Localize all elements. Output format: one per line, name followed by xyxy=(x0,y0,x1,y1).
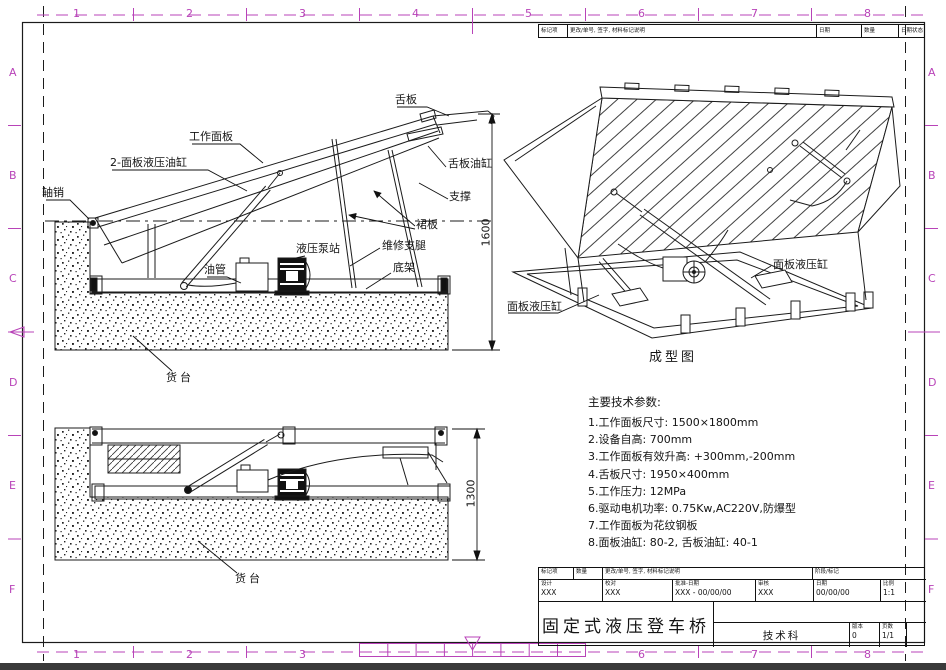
zone-number-bottom: 2 xyxy=(186,649,193,661)
zone-letter-left: C xyxy=(9,273,17,285)
cell-label: 比例 xyxy=(881,580,926,588)
cell-label: 版本 xyxy=(850,623,879,631)
bottom-bar xyxy=(0,663,946,670)
title-block-cell: 标记项 xyxy=(539,568,574,580)
zone-letter-right: E xyxy=(928,480,935,492)
revision-strip-cell: 日期 xyxy=(816,25,861,37)
department: 技术科 xyxy=(714,623,849,647)
callout-panel-cylinder: 2-面板液压油缸 xyxy=(110,157,187,169)
revision-strip-cell: 数量 xyxy=(861,25,898,37)
title-block-cell-checker: 校对 XXX xyxy=(603,580,673,602)
tech-parameter-item: 3.工作面板有效升高: +300mm,-200mm xyxy=(588,448,928,465)
dimension-text-1300: 1300 xyxy=(465,472,478,516)
zone-letter-right: F xyxy=(928,584,934,596)
cell-label: 数量 xyxy=(574,568,602,576)
callout-service-legs: 维修支腿 xyxy=(382,240,426,252)
cell-label: 审核 xyxy=(756,580,813,588)
cell-label: 日期 xyxy=(814,580,880,588)
zone-letter-right: D xyxy=(928,377,936,389)
dimension-text-1600: 1600 xyxy=(480,211,493,255)
zone-number-bottom: 6 xyxy=(638,649,645,661)
callout-tongue-plate: 舌板 xyxy=(395,94,417,106)
side-view-lowered xyxy=(55,427,450,560)
zone-number-bottom: 8 xyxy=(864,649,871,661)
tech-parameters-title: 主要技术参数: xyxy=(588,394,928,410)
callout-skirt-plate: 裙板 xyxy=(416,219,438,231)
callout-axle-pin: 轴销 xyxy=(42,187,64,199)
zone-number-top: 3 xyxy=(299,8,306,20)
title-block-cell-designer: 设计 XXX xyxy=(539,580,603,602)
zone-number-top: 2 xyxy=(186,8,193,20)
callout-panel-cylinder-iso-right: 面板液压缸 xyxy=(773,259,828,271)
tech-parameter-item: 5.工作压力: 12MPa xyxy=(588,483,928,500)
cell-value: 00/00/00 xyxy=(814,588,880,597)
title-block-cell: 阶段/标记 xyxy=(813,568,926,580)
callout-support: 支撑 xyxy=(449,191,471,203)
cell-label: 标记项 xyxy=(539,568,573,576)
title-block-empty-cell xyxy=(714,602,926,623)
title-block-cell-auditor: 审核 XXX xyxy=(756,580,814,602)
callout-pump-station: 液压泵站 xyxy=(296,243,340,255)
title-block-cell-date: 日期 00/00/00 xyxy=(814,580,881,602)
zone-number-top: 1 xyxy=(73,8,80,20)
zone-number-top: 8 xyxy=(864,8,871,20)
tech-parameter-item: 7.工作面板为花纹钢板 xyxy=(588,517,928,534)
dimension-1600 xyxy=(452,114,500,350)
isometric-view xyxy=(504,83,900,338)
cell-label: 批准-日期 xyxy=(673,580,755,588)
title-block-cell-sheet: 页数 1/1 xyxy=(879,623,906,647)
zone-number-top: 7 xyxy=(751,8,758,20)
title-block-cell-version: 版本 0 xyxy=(849,623,879,647)
zone-letter-left: F xyxy=(9,584,15,596)
title-block-cell: 数量 xyxy=(574,568,603,580)
zone-number-top: 6 xyxy=(638,8,645,20)
cell-label: 更改/单号, 签字, 材料标记说明 xyxy=(603,568,812,576)
cell-label: 校对 xyxy=(603,580,672,588)
cell-value: XXX - 00/00/00 xyxy=(673,588,755,597)
cell-label: 设计 xyxy=(539,580,602,588)
cell-label: 页数 xyxy=(880,623,906,631)
tech-parameter-item: 6.驱动电机功率: 0.75Kw,AC220V,防爆型 xyxy=(588,500,928,517)
zone-letter-left: B xyxy=(9,170,17,182)
revision-strip: 标记项 更改/单号, 签字, 材料标记说明 日期 数量 日期状态 xyxy=(538,24,925,38)
callout-dock-lower: 货台 xyxy=(235,573,263,585)
product-title: 固定式液压登车桥 xyxy=(539,602,714,647)
title-block-cell: 更改/单号, 签字, 材料标记说明 xyxy=(603,568,813,580)
callout-base-frame: 底架 xyxy=(393,262,415,274)
callout-oil-pipe: 油管 xyxy=(204,264,226,276)
revision-strip-cell: 标记项 xyxy=(539,25,567,37)
callout-panel-cylinder-iso-left: 面板液压缸 xyxy=(507,301,562,313)
zone-letter-right: B xyxy=(928,170,936,182)
title-block-empty-cell xyxy=(906,623,926,647)
cell-value: 0 xyxy=(850,631,879,640)
isometric-caption: 成型图 xyxy=(649,346,697,365)
callout-work-panel: 工作面板 xyxy=(189,131,233,143)
zone-letter-left: A xyxy=(9,67,17,79)
cell-label: 阶段/标记 xyxy=(813,568,926,576)
cell-value: 1/1 xyxy=(880,631,906,640)
zone-number-top: 5 xyxy=(525,8,532,20)
cell-value: XXX xyxy=(756,588,813,597)
tech-parameter-item: 1.工作面板尺寸: 1500×1800mm xyxy=(588,414,928,431)
title-block-cell-approver: 批准-日期 XXX - 00/00/00 xyxy=(673,580,756,602)
drawing-sheet: 1 2 3 4 5 6 7 8 1 2 3 6 7 8 A B C D E F … xyxy=(0,0,946,670)
zone-number-top: 4 xyxy=(412,8,419,20)
zone-letter-right: C xyxy=(928,273,936,285)
tech-parameter-item: 4.舌板尺寸: 1950×400mm xyxy=(588,466,928,483)
tech-parameter-item: 2.设备自高: 700mm xyxy=(588,431,928,448)
callout-dock-upper: 货台 xyxy=(166,372,194,384)
zone-number-bottom: 3 xyxy=(299,649,306,661)
title-block-cell-scale: 比例 1:1 xyxy=(881,580,926,602)
cell-value: XXX xyxy=(539,588,602,597)
revision-strip-cell: 日期状态 xyxy=(898,25,924,37)
revision-strip-cell: 更改/单号, 签字, 材料标记说明 xyxy=(567,25,816,37)
zone-letter-left: D xyxy=(9,377,17,389)
callout-tongue-cylinder: 舌板油缸 xyxy=(448,158,492,170)
zone-letter-right: A xyxy=(928,67,936,79)
title-block: 标记项 数量 更改/单号, 签字, 材料标记说明 阶段/标记 设计 XXX 校对… xyxy=(538,567,925,646)
cell-value: 1:1 xyxy=(881,588,926,597)
tech-parameters: 主要技术参数: 1.工作面板尺寸: 1500×1800mm 2.设备自高: 70… xyxy=(588,394,928,552)
zone-number-bottom: 1 xyxy=(73,649,80,661)
tech-parameter-item: 8.面板油缸: 80-2, 舌板油缸: 40-1 xyxy=(588,534,928,551)
cell-value: XXX xyxy=(603,588,672,597)
zone-number-bottom: 7 xyxy=(751,649,758,661)
zone-letter-left: E xyxy=(9,480,16,492)
